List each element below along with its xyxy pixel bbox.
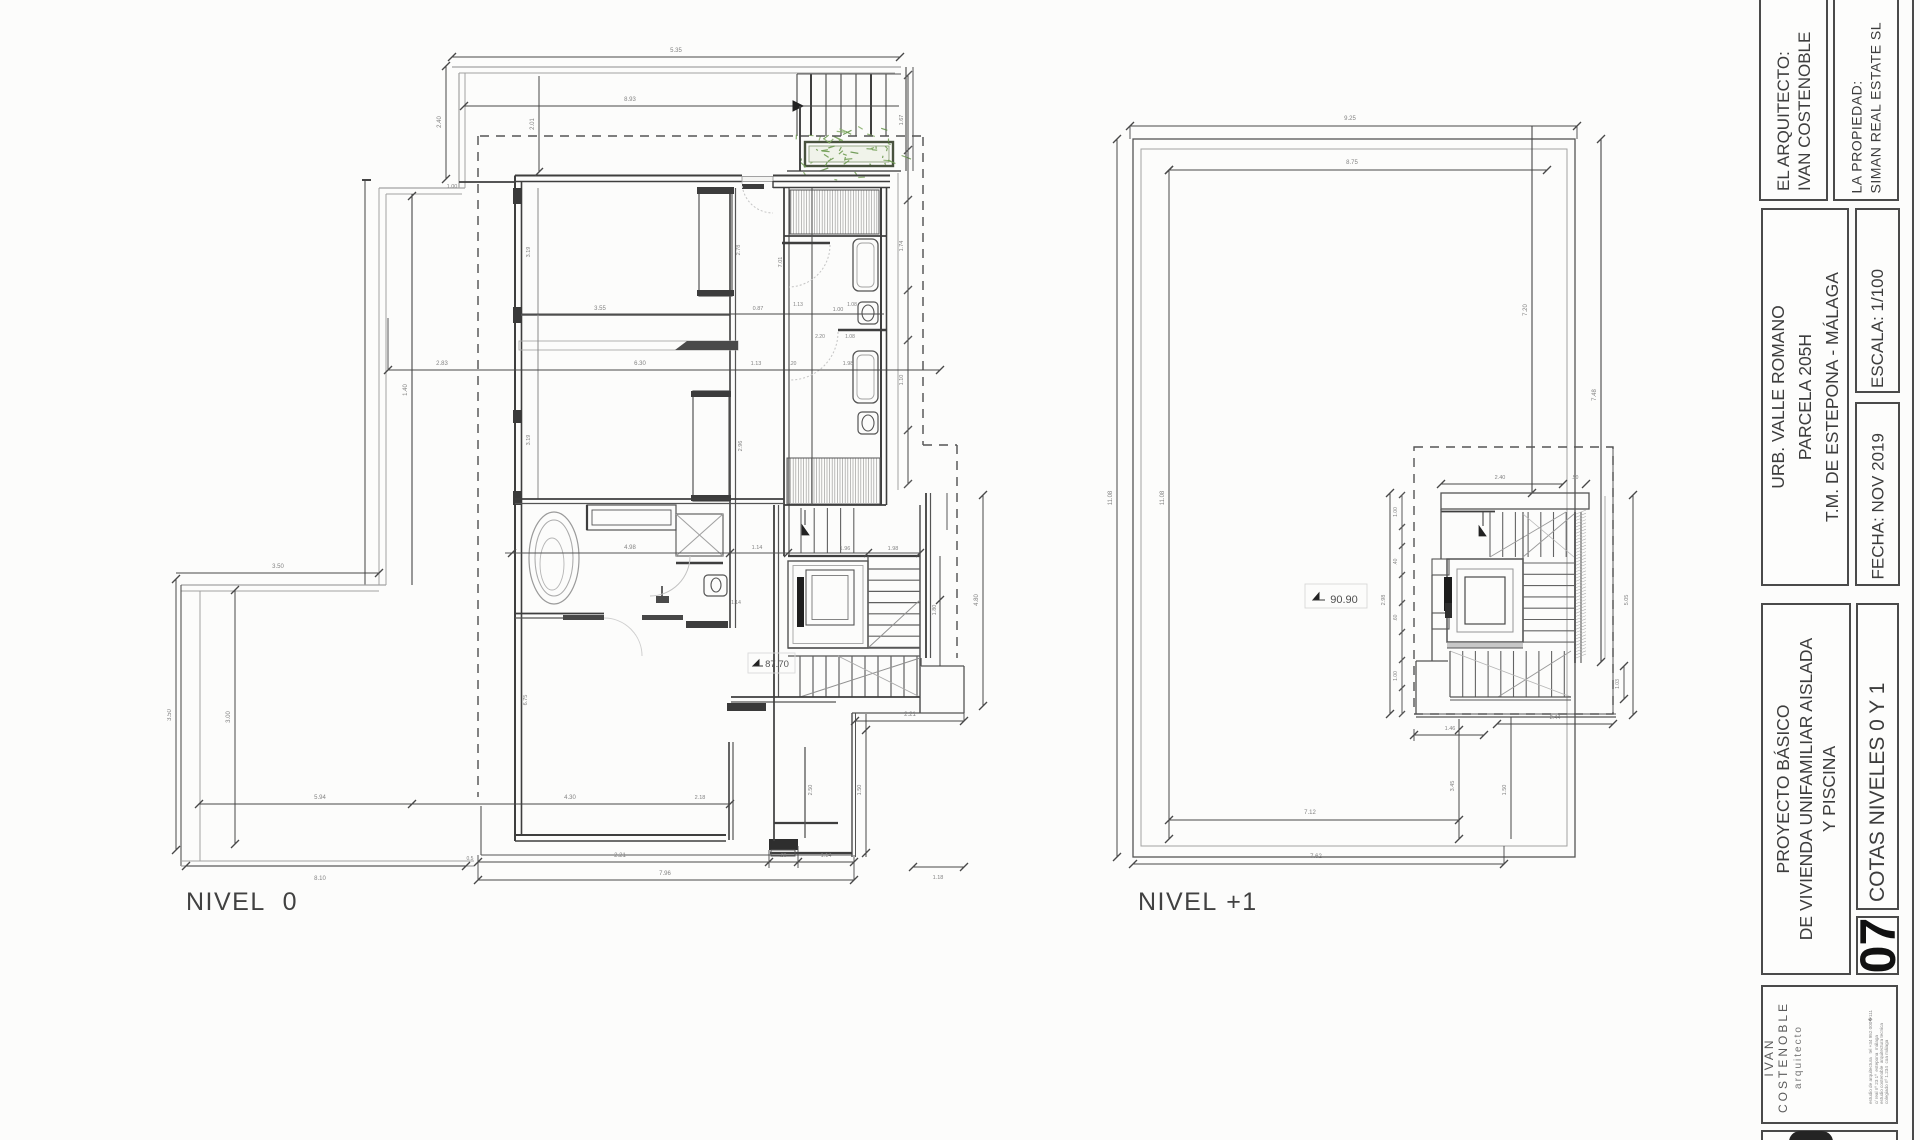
svg-text:11.08: 11.08 — [1108, 490, 1114, 505]
svg-text:5.05: 5.05 — [1624, 595, 1630, 606]
svg-text:1.00: 1.00 — [1393, 507, 1399, 517]
svg-text:3.55: 3.55 — [594, 306, 606, 312]
svg-text:2.21: 2.21 — [614, 853, 626, 859]
svg-text:6.75: 6.75 — [523, 695, 529, 706]
svg-text:1.13: 1.13 — [751, 361, 762, 367]
svg-text:1.08: 1.08 — [845, 334, 855, 340]
svg-text:4.98: 4.98 — [624, 545, 636, 551]
svg-text:1.67: 1.67 — [899, 115, 905, 126]
svg-text:3.19: 3.19 — [526, 247, 532, 258]
svg-text:1.00: 1.00 — [1393, 671, 1399, 681]
svg-text:1.98: 1.98 — [888, 546, 899, 552]
svg-text:.40: .40 — [1393, 558, 1399, 565]
svg-text:7.62: 7.62 — [1310, 854, 1322, 860]
svg-text:1.00: 1.00 — [447, 184, 458, 190]
svg-text:2.20: 2.20 — [815, 334, 825, 340]
svg-text:2.78: 2.78 — [736, 245, 742, 256]
svg-text:3.45: 3.45 — [1450, 781, 1456, 792]
svg-text:1.03: 1.03 — [1615, 679, 1621, 689]
svg-text:3.50: 3.50 — [272, 564, 284, 570]
svg-text:1.50: 1.50 — [857, 785, 863, 796]
svg-text:1.08: 1.08 — [847, 302, 857, 308]
svg-text:4.80: 4.80 — [974, 594, 980, 606]
svg-text:7.20: 7.20 — [1523, 304, 1529, 316]
svg-text:NIVEL +1: NIVEL +1 — [1138, 888, 1258, 916]
svg-text:5.94: 5.94 — [314, 795, 326, 801]
svg-text:7.01: 7.01 — [778, 257, 784, 268]
svg-text:2.98: 2.98 — [1381, 595, 1387, 606]
svg-text:1.98: 1.98 — [843, 361, 854, 367]
svg-text:1.14: 1.14 — [752, 545, 763, 551]
svg-text:3.50: 3.50 — [167, 709, 173, 721]
svg-text:2.18: 2.18 — [695, 795, 706, 801]
svg-text:7.48: 7.48 — [1592, 389, 1598, 401]
svg-text:0.5: 0.5 — [467, 856, 474, 862]
svg-text:7.12: 7.12 — [1304, 810, 1316, 816]
svg-text:1.40: 1.40 — [403, 384, 409, 396]
svg-text:2.50: 2.50 — [808, 785, 814, 796]
svg-text:1.74: 1.74 — [899, 241, 905, 252]
svg-text:.20: .20 — [790, 361, 797, 367]
svg-text:87.70: 87.70 — [765, 659, 789, 670]
svg-text:2.40: 2.40 — [1495, 475, 1506, 481]
svg-text:7.96: 7.96 — [659, 871, 671, 877]
svg-text:4.30: 4.30 — [564, 795, 576, 801]
svg-text:NIVEL 0: NIVEL 0 — [186, 888, 298, 916]
svg-text:1.18: 1.18 — [933, 875, 944, 881]
svg-text:1.14: 1.14 — [821, 853, 832, 859]
svg-text:1.80: 1.80 — [932, 605, 938, 616]
svg-text:1.46: 1.46 — [1445, 726, 1456, 732]
svg-text:.50: .50 — [1572, 475, 1579, 481]
svg-text:8.10: 8.10 — [314, 876, 326, 882]
svg-text:3.00: 3.00 — [226, 711, 232, 723]
svg-text:2.01: 2.01 — [530, 118, 536, 130]
svg-text:2.83: 2.83 — [436, 361, 448, 367]
svg-text:90.90: 90.90 — [1330, 594, 1358, 606]
svg-text:1.50: 1.50 — [1502, 785, 1508, 796]
svg-text:11.08: 11.08 — [1160, 490, 1166, 505]
svg-text:1.00: 1.00 — [833, 307, 844, 313]
svg-text:5.35: 5.35 — [670, 48, 682, 54]
svg-text:1.10: 1.10 — [899, 375, 905, 386]
svg-text:1.13: 1.13 — [793, 302, 803, 308]
svg-text:6.30: 6.30 — [634, 361, 646, 367]
svg-text:2.40: 2.40 — [437, 116, 443, 128]
svg-text:2.21: 2.21 — [904, 712, 916, 718]
svg-text:2.96: 2.96 — [738, 441, 744, 452]
svg-text:9.25: 9.25 — [1344, 116, 1356, 122]
svg-text:1.14: 1.14 — [731, 600, 741, 606]
svg-text:.60: .60 — [1393, 614, 1399, 621]
svg-text:1.96: 1.96 — [840, 546, 851, 552]
svg-text:.80: .80 — [780, 853, 787, 859]
svg-text:8.93: 8.93 — [624, 97, 636, 103]
svg-text:3.19: 3.19 — [526, 435, 532, 446]
svg-text:0.87: 0.87 — [753, 306, 764, 312]
svg-text:8.75: 8.75 — [1346, 160, 1358, 166]
svg-text:2.44: 2.44 — [1550, 715, 1561, 721]
